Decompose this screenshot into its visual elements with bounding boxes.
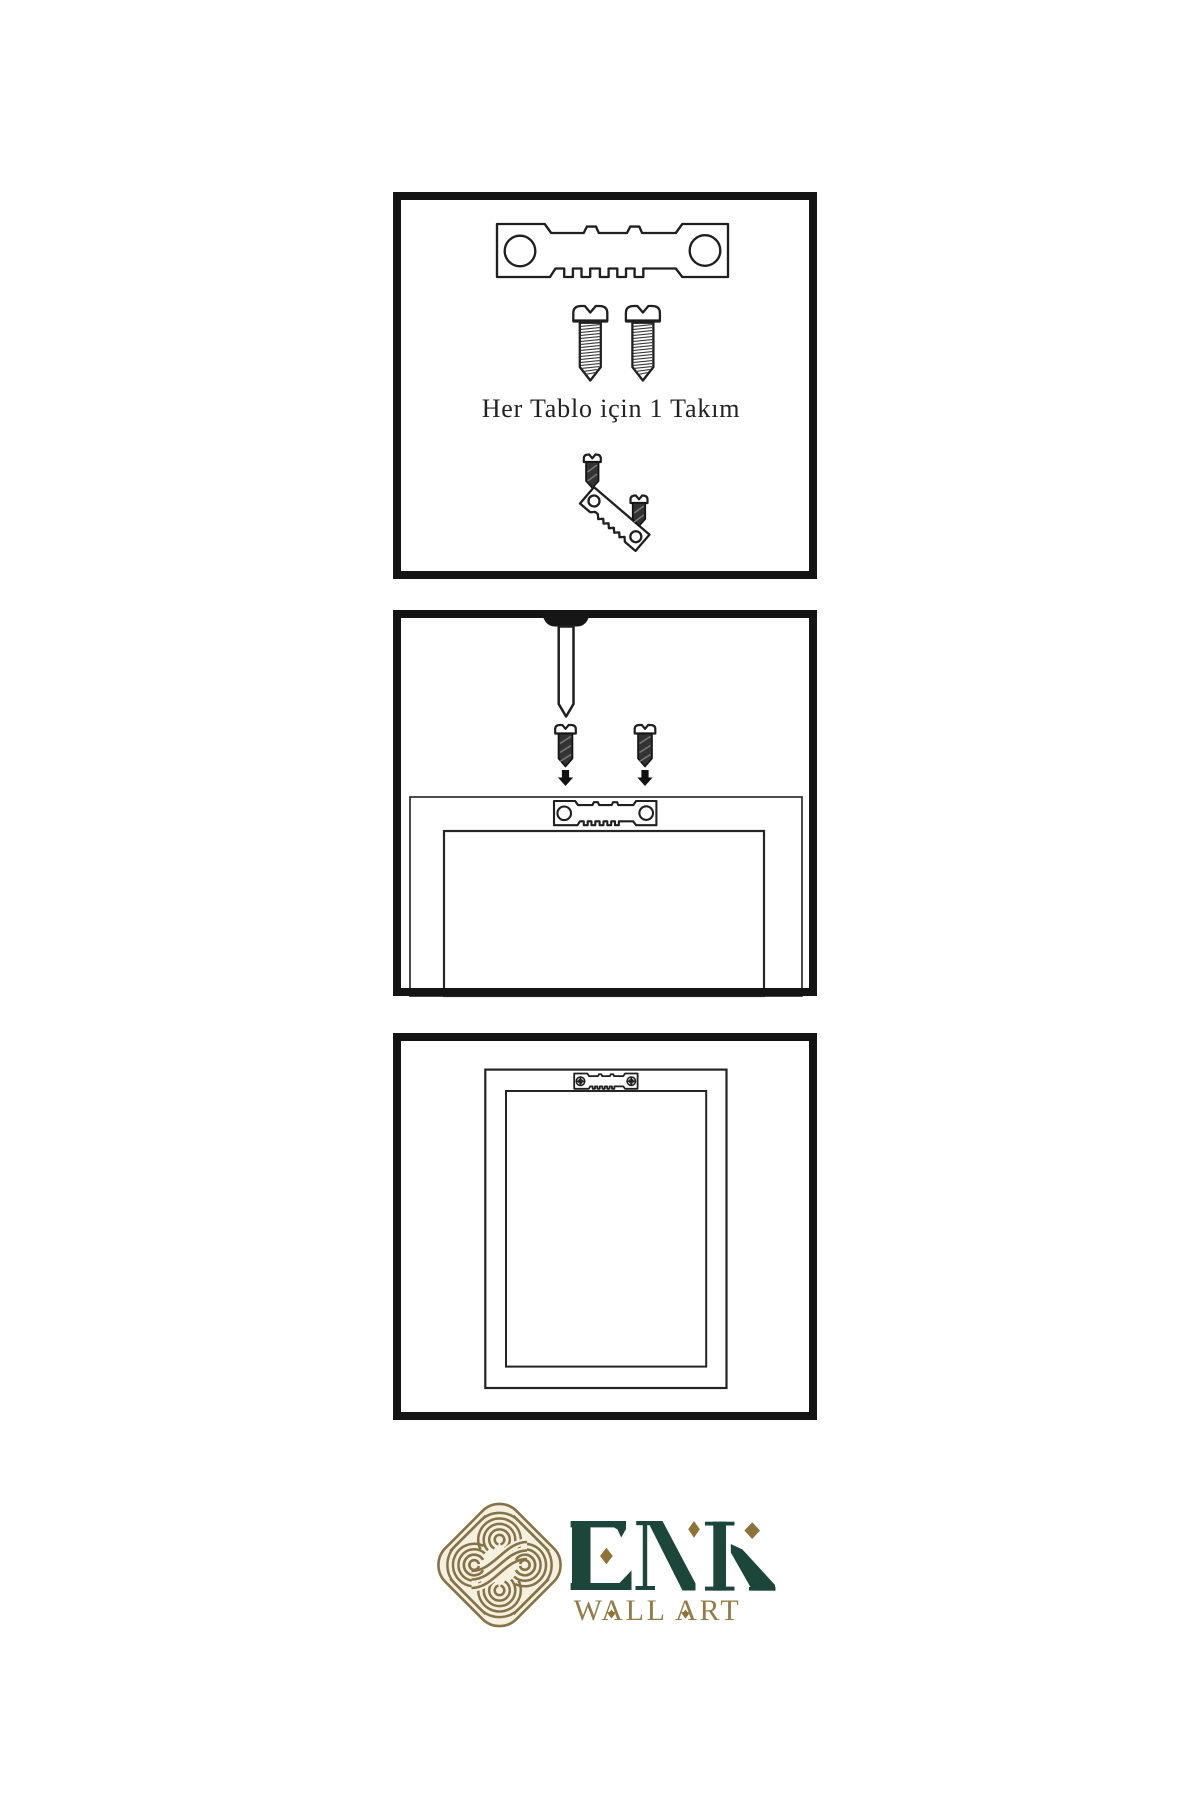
svg-text:Her Tablo için 1 Takım: Her Tablo için 1 Takım (482, 394, 741, 423)
svg-text:WALL ART: WALL ART (574, 1594, 742, 1627)
